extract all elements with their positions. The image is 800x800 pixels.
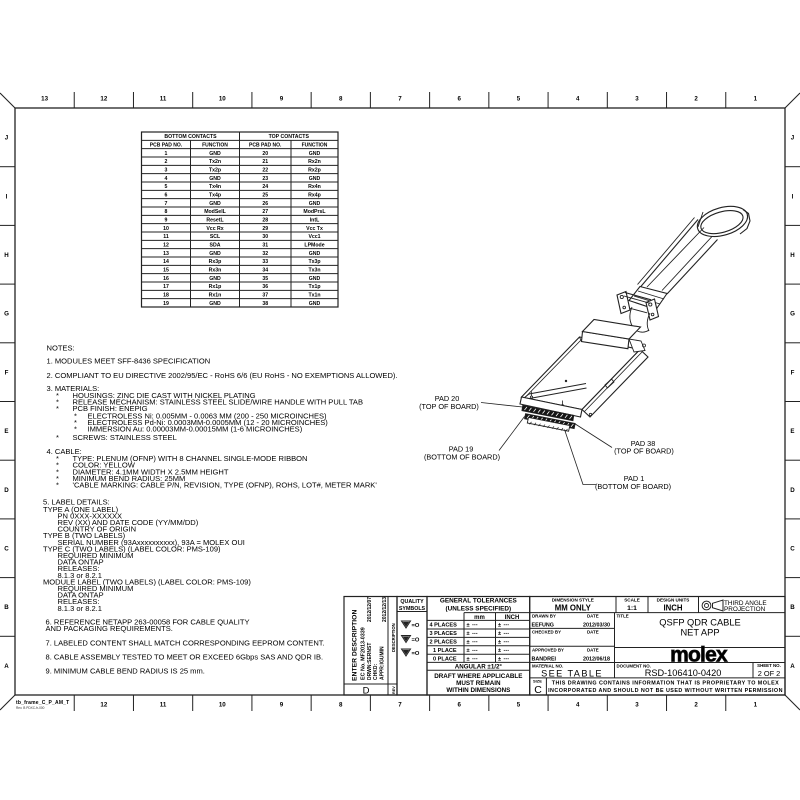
svg-text:6: 6	[458, 702, 462, 709]
svg-text:H: H	[790, 252, 795, 259]
svg-text:5: 5	[517, 96, 521, 103]
svg-text:3: 3	[165, 168, 168, 174]
svg-text:(BOTTOM OF BOARD): (BOTTOM OF BOARD)	[424, 453, 500, 462]
svg-text:LPMode: LPMode	[304, 243, 324, 249]
svg-text:CHKD:: CHKD:	[373, 664, 379, 680]
svg-text:EEFUNG: EEFUNG	[532, 623, 554, 629]
svg-text:Tx2n: Tx2n	[209, 159, 221, 165]
svg-text:(BOTTOM OF BOARD): (BOTTOM OF BOARD)	[595, 482, 671, 491]
svg-text:GND: GND	[309, 176, 321, 182]
svg-text:B: B	[790, 604, 795, 611]
svg-text:Vcc Rx: Vcc Rx	[206, 226, 223, 232]
svg-text:34: 34	[262, 268, 268, 274]
svg-text:Tx2p: Tx2p	[209, 168, 221, 174]
svg-text:FUNCTION: FUNCTION	[302, 143, 328, 149]
svg-text:21: 21	[262, 159, 268, 165]
svg-text:*: *	[56, 481, 59, 490]
svg-text:GND: GND	[309, 301, 321, 307]
svg-text:3 PLACES: 3 PLACES	[430, 631, 458, 637]
svg-text:3: 3	[635, 702, 639, 709]
svg-text:23: 23	[262, 176, 268, 182]
svg-text:RSD-106410-0420: RSD-106410-0420	[645, 668, 722, 678]
svg-text:G: G	[4, 311, 9, 318]
svg-text:---: ---	[504, 656, 510, 662]
svg-text:TOP CONTACTS: TOP CONTACTS	[269, 134, 310, 140]
svg-text:Tx1p: Tx1p	[308, 284, 320, 290]
svg-text:BANDREI: BANDREI	[532, 656, 557, 662]
svg-text:11: 11	[160, 96, 167, 103]
svg-text:27: 27	[262, 209, 268, 215]
svg-text:4: 4	[576, 702, 580, 709]
svg-text:QUALITY: QUALITY	[400, 599, 424, 605]
svg-text:±: ±	[498, 623, 501, 629]
svg-text:37: 37	[262, 293, 268, 299]
svg-text:Rx4p: Rx4p	[308, 193, 321, 199]
svg-text:---: ---	[504, 631, 510, 637]
svg-text:---: ---	[504, 648, 510, 654]
svg-text:0 PLACE: 0 PLACE	[433, 656, 457, 662]
svg-text:Vcc Tx: Vcc Tx	[306, 226, 323, 232]
svg-text:F: F	[5, 369, 9, 376]
svg-text:9: 9	[280, 96, 284, 103]
svg-text:2012/03/30: 2012/03/30	[583, 623, 610, 629]
svg-text:---: ---	[472, 622, 478, 628]
svg-text:DATE: DATE	[587, 647, 599, 652]
svg-text:A: A	[4, 663, 9, 670]
svg-text:Rx3p: Rx3p	[209, 259, 222, 265]
svg-text:12: 12	[100, 96, 107, 103]
svg-text:22: 22	[262, 168, 268, 174]
svg-text:DRAWN BY: DRAWN BY	[532, 614, 556, 619]
svg-text:PCB PAD NO.: PCB PAD NO.	[150, 143, 183, 149]
svg-text:2012/12/07: 2012/12/07	[367, 597, 373, 622]
svg-text:GND: GND	[309, 251, 321, 257]
svg-text:Rx2p: Rx2p	[308, 168, 321, 174]
svg-text:---: ---	[472, 656, 478, 662]
svg-text:SHEET NO.: SHEET NO.	[757, 663, 781, 668]
svg-text:8: 8	[165, 209, 168, 215]
svg-text:8. CABLE ASSEMBLY TESTED TO ME: 8. CABLE ASSEMBLY TESTED TO MEET OR EXCE…	[46, 653, 324, 662]
svg-text:32: 32	[262, 251, 268, 257]
svg-text:1: 1	[754, 96, 758, 103]
svg-text:GND: GND	[209, 301, 221, 307]
svg-text:*: *	[56, 404, 59, 413]
svg-text:GND: GND	[309, 201, 321, 207]
svg-text:DESIGN UNITS: DESIGN UNITS	[657, 597, 690, 602]
svg-text:31: 31	[262, 243, 268, 249]
svg-text:±: ±	[498, 640, 501, 646]
svg-text:1:1: 1:1	[627, 605, 637, 612]
svg-text:REV: REV	[392, 686, 396, 694]
svg-text:'CABLE MARKING: CABLE P/N, REV: 'CABLE MARKING: CABLE P/N, REVISION, TYP…	[73, 481, 378, 490]
svg-text:DATE: DATE	[587, 629, 599, 634]
svg-text:11: 11	[163, 234, 169, 240]
svg-text:4: 4	[576, 96, 580, 103]
svg-text:1: 1	[165, 151, 168, 157]
svg-text:2: 2	[694, 702, 698, 709]
svg-text:GND: GND	[209, 251, 221, 257]
svg-text:E: E	[4, 428, 8, 435]
svg-text:±: ±	[498, 648, 501, 654]
svg-text:38: 38	[262, 301, 268, 307]
svg-text:29: 29	[262, 226, 268, 232]
svg-text:Tx1n: Tx1n	[308, 293, 320, 299]
svg-text:(UNLESS SPECIFIED): (UNLESS SPECIFIED)	[445, 606, 511, 613]
svg-text:GND: GND	[209, 176, 221, 182]
svg-text:Rev. B PDXC-fr-000: Rev. B PDXC-fr-000	[16, 706, 45, 710]
svg-text:36: 36	[262, 284, 268, 290]
svg-text:7. LABELED CONTENT SHALL MATCH: 7. LABELED CONTENT SHALL MATCH CORRESPON…	[46, 639, 325, 648]
svg-text:NET APP: NET APP	[680, 628, 719, 638]
svg-text:GND: GND	[309, 276, 321, 282]
svg-text:C: C	[790, 545, 795, 552]
svg-text:19: 19	[163, 301, 169, 307]
svg-text:molex: molex	[670, 643, 728, 666]
svg-text:25: 25	[262, 193, 268, 199]
svg-text:=O: =O	[412, 638, 420, 644]
svg-text:±: ±	[467, 640, 470, 646]
svg-text:10: 10	[219, 96, 226, 103]
svg-text:---: ---	[472, 648, 478, 654]
svg-text:2: 2	[165, 159, 168, 165]
svg-text:SCREWS: STAINLESS STEEL: SCREWS: STAINLESS STEEL	[73, 433, 177, 442]
svg-text:Vcc1: Vcc1	[308, 234, 320, 240]
svg-text:BOTTOM CONTACTS: BOTTOM CONTACTS	[164, 134, 217, 140]
svg-text:I: I	[6, 193, 8, 200]
svg-text:Tx4p: Tx4p	[209, 193, 221, 199]
svg-text:PCB PAD NO.: PCB PAD NO.	[249, 143, 282, 149]
svg-text:9. MINIMUM CABLE BEND RADIUS I: 9. MINIMUM CABLE BEND RADIUS IS 25 mm.	[46, 667, 205, 676]
svg-text:F: F	[791, 369, 795, 376]
svg-text:3: 3	[635, 96, 639, 103]
svg-text:GND: GND	[309, 151, 321, 157]
svg-text:SIZE: SIZE	[533, 679, 542, 684]
svg-text:±: ±	[467, 623, 470, 629]
svg-text:6: 6	[165, 193, 168, 199]
svg-text:11: 11	[160, 702, 167, 709]
svg-text:1 PLACE: 1 PLACE	[433, 648, 457, 654]
svg-text:Tx4n: Tx4n	[209, 184, 221, 190]
svg-text:DATE: DATE	[587, 614, 599, 619]
svg-text:DIMENSION STYLE: DIMENSION STYLE	[552, 597, 594, 602]
svg-text:Rx1p: Rx1p	[209, 284, 222, 290]
svg-text:C: C	[4, 545, 9, 552]
svg-text:B: B	[4, 604, 9, 611]
svg-text:=O: =O	[412, 623, 420, 629]
svg-text:16: 16	[163, 276, 169, 282]
svg-text:mm: mm	[474, 615, 485, 621]
svg-text:G: G	[790, 311, 795, 318]
svg-text:(TOP OF BOARD): (TOP OF BOARD)	[419, 402, 479, 411]
svg-text:APPR:IGUMIN: APPR:IGUMIN	[380, 646, 386, 680]
svg-text:17: 17	[163, 284, 169, 290]
svg-text:C: C	[534, 684, 542, 696]
svg-text:AND PACKAGING REQUIREMENTS.: AND PACKAGING REQUIREMENTS.	[46, 624, 173, 633]
svg-text:9: 9	[165, 218, 168, 224]
svg-text:7: 7	[398, 96, 402, 103]
svg-text:±: ±	[498, 656, 501, 662]
svg-text:1. MODULES MEET SFF-8436 SPECI: 1. MODULES MEET SFF-8436 SPECIFICATION	[47, 357, 211, 366]
svg-text:12: 12	[163, 243, 169, 249]
svg-text:MM ONLY: MM ONLY	[555, 603, 592, 612]
svg-text:1: 1	[754, 702, 758, 709]
svg-text:Tx3n: Tx3n	[308, 268, 320, 274]
svg-text:NOTES:: NOTES:	[47, 344, 75, 353]
svg-text:18: 18	[163, 293, 169, 299]
svg-text:I: I	[792, 193, 794, 200]
svg-text:J: J	[791, 135, 795, 142]
svg-text:5: 5	[517, 702, 521, 709]
svg-text:7: 7	[165, 201, 168, 207]
svg-text:DRAFT WHERE APPLICABLE: DRAFT WHERE APPLICABLE	[434, 673, 522, 680]
svg-text:---: ---	[472, 631, 478, 637]
svg-text:THIS DRAWING CONTAINS INFORMAT: THIS DRAWING CONTAINS INFORMATION THAT I…	[552, 681, 779, 687]
svg-text:FUNCTION: FUNCTION	[202, 143, 228, 149]
svg-text:A: A	[790, 663, 795, 670]
svg-text:DESCRIPTION: DESCRIPTION	[391, 623, 396, 652]
svg-text:13: 13	[163, 251, 169, 257]
svg-text:±: ±	[467, 656, 470, 662]
svg-text:Rx1n: Rx1n	[209, 293, 222, 299]
svg-text:2: 2	[694, 96, 698, 103]
svg-text:---: ---	[472, 639, 478, 645]
svg-text:D: D	[790, 487, 795, 494]
svg-text:ModPrsL: ModPrsL	[303, 209, 326, 215]
svg-text:GND: GND	[209, 201, 221, 207]
svg-text:ANGULAR ±1/2°: ANGULAR ±1/2°	[455, 663, 503, 670]
svg-text:28: 28	[262, 218, 268, 224]
svg-text:D: D	[4, 487, 9, 494]
svg-text:INCH: INCH	[663, 603, 682, 612]
svg-text:2. COMPLIANT TO EU DIRECTIVE 2: 2. COMPLIANT TO EU DIRECTIVE 2002/95/EC …	[47, 371, 398, 380]
svg-text:APPROVED BY: APPROVED BY	[532, 647, 564, 652]
svg-text:Rx4n: Rx4n	[308, 184, 321, 190]
svg-text:ENTER DESCRIPTION: ENTER DESCRIPTION	[352, 610, 359, 681]
svg-text:H: H	[4, 252, 9, 259]
svg-text:GENERAL TOLERANCES: GENERAL TOLERANCES	[440, 598, 518, 605]
svg-text:±: ±	[467, 631, 470, 637]
svg-text:ModSelL: ModSelL	[204, 209, 226, 215]
svg-text:10: 10	[163, 226, 169, 232]
svg-text:ResetL: ResetL	[206, 218, 224, 224]
svg-text:J: J	[5, 135, 9, 142]
svg-text:SCALE: SCALE	[624, 597, 640, 602]
svg-text:SCL: SCL	[210, 234, 221, 240]
svg-text:CHECKED BY: CHECKED BY	[532, 629, 561, 634]
svg-text:*: *	[56, 433, 59, 442]
svg-text:2 OF 2: 2 OF 2	[758, 669, 781, 678]
svg-text:SDA: SDA	[210, 243, 221, 249]
svg-text:9: 9	[280, 702, 284, 709]
svg-text:8.1.3 or 8.2.1: 8.1.3 or 8.2.1	[58, 604, 102, 613]
svg-text:4: 4	[165, 176, 168, 182]
svg-text:5: 5	[165, 184, 168, 190]
svg-text:2012/12/13: 2012/12/13	[382, 597, 388, 622]
svg-text:=O: =O	[412, 651, 420, 657]
svg-text:INCH: INCH	[505, 615, 520, 621]
svg-text:35: 35	[262, 276, 268, 282]
svg-text:±: ±	[467, 648, 470, 654]
svg-text:13: 13	[41, 96, 48, 103]
svg-text:E: E	[790, 428, 794, 435]
svg-text:33: 33	[262, 259, 268, 265]
svg-text:12: 12	[100, 702, 107, 709]
svg-text:14: 14	[163, 259, 169, 265]
svg-text:2012/06/18: 2012/06/18	[583, 656, 610, 662]
svg-text:PROJECTION: PROJECTION	[724, 606, 766, 613]
svg-text:8: 8	[339, 96, 343, 103]
svg-text:6: 6	[458, 96, 462, 103]
svg-text:10: 10	[219, 702, 226, 709]
svg-text:20: 20	[262, 151, 268, 157]
svg-text:GND: GND	[209, 276, 221, 282]
svg-text:7: 7	[398, 702, 402, 709]
svg-text:GND: GND	[209, 151, 221, 157]
svg-text:Tx3p: Tx3p	[308, 259, 320, 265]
svg-text:---: ---	[504, 639, 510, 645]
svg-text:26: 26	[262, 201, 268, 207]
svg-text:WITHIN DIMENSIONS: WITHIN DIMENSIONS	[446, 687, 510, 694]
svg-text:2 PLACES: 2 PLACES	[430, 640, 458, 646]
svg-text:(TOP OF BOARD): (TOP OF BOARD)	[614, 447, 674, 456]
svg-text:IntL: IntL	[310, 218, 320, 224]
svg-text:30: 30	[262, 234, 268, 240]
svg-text:MUST REMAIN: MUST REMAIN	[456, 680, 501, 687]
svg-text:SEE TABLE: SEE TABLE	[541, 669, 603, 679]
svg-text:QSFP QDR CABLE: QSFP QDR CABLE	[659, 618, 740, 628]
svg-text:Rx2n: Rx2n	[308, 159, 321, 165]
svg-text:INCORPORATED AND SHOULD NOT BE: INCORPORATED AND SHOULD NOT BE USED WITH…	[548, 688, 783, 694]
svg-text:---: ---	[504, 622, 510, 628]
svg-text:±: ±	[498, 631, 501, 637]
svg-text:8: 8	[339, 702, 343, 709]
svg-text:24: 24	[262, 184, 268, 190]
svg-text:15: 15	[163, 268, 169, 274]
svg-text:4 PLACES: 4 PLACES	[430, 623, 458, 629]
svg-text:EC No. MF2013-0339: EC No. MF2013-0339	[361, 627, 367, 680]
svg-text:D: D	[363, 686, 370, 697]
svg-text:Rx3n: Rx3n	[209, 268, 222, 274]
svg-text:TITLE: TITLE	[617, 613, 629, 618]
